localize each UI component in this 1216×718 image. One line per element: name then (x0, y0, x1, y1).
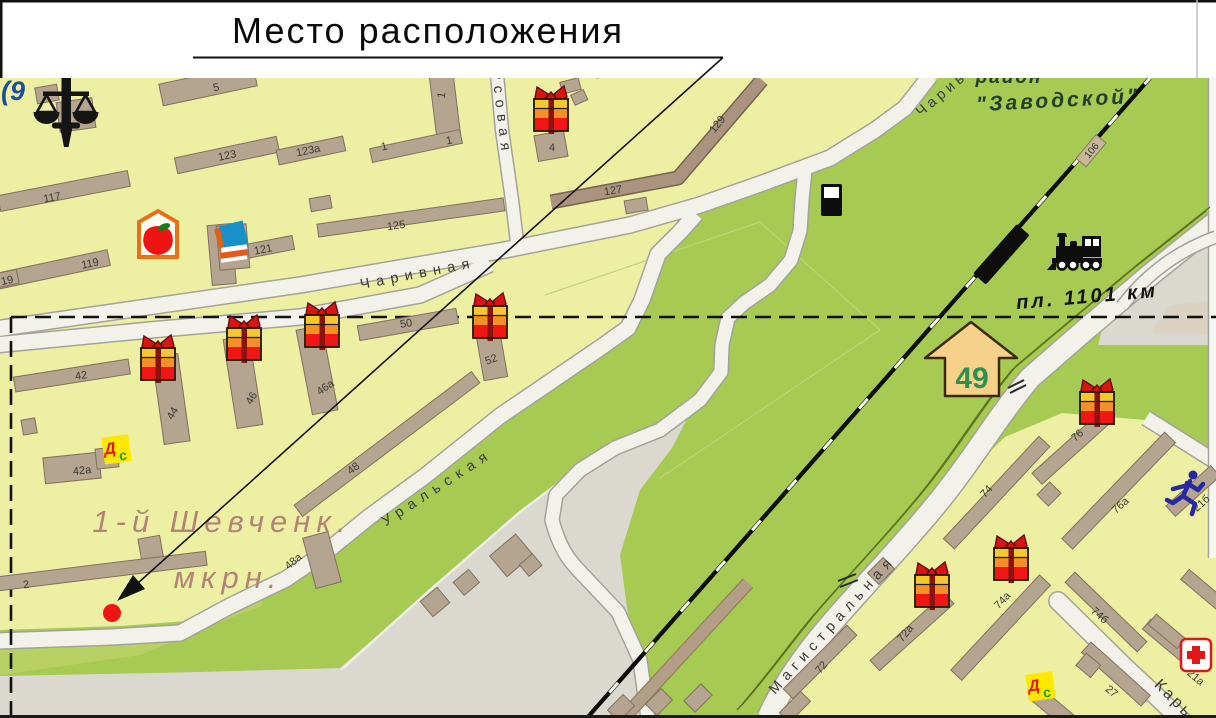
svg-text:1-й Шевченк.: 1-й Шевченк. (92, 504, 351, 539)
svg-text:19: 19 (0, 274, 14, 288)
svg-text:42: 42 (74, 369, 88, 383)
svg-text:(9: (9 (1, 76, 25, 106)
svg-text:50: 50 (399, 317, 413, 331)
svg-text:42а: 42а (72, 464, 92, 478)
svg-text:мкрн.: мкрн. (174, 560, 283, 595)
svg-text:49: 49 (955, 362, 988, 395)
svg-text:4: 4 (549, 142, 555, 154)
svg-text:125: 125 (386, 219, 406, 233)
svg-text:Место расположения: Место расположения (232, 10, 624, 51)
